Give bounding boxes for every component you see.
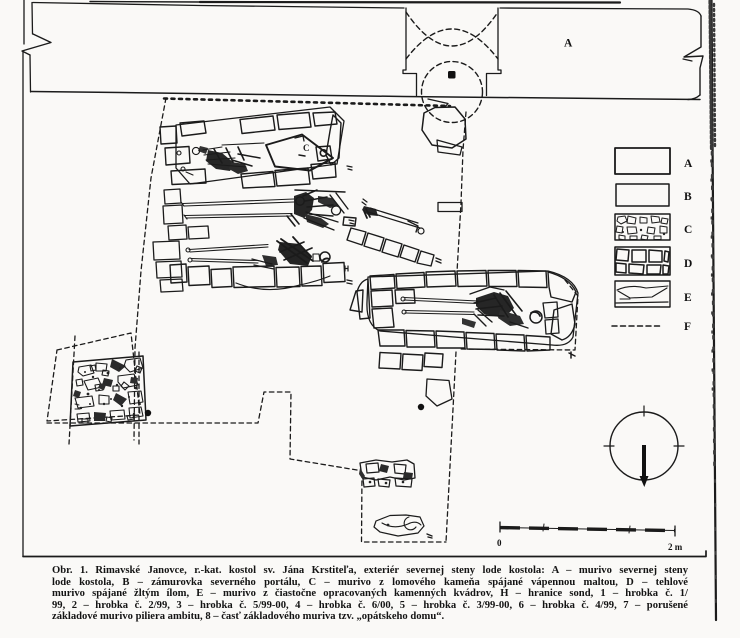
svg-text:C: C: [684, 224, 692, 236]
svg-text:B: B: [684, 191, 692, 203]
svg-text:E: E: [684, 292, 692, 304]
svg-text:F: F: [684, 321, 691, 333]
svg-text:0: 0: [497, 538, 502, 548]
svg-text:D: D: [684, 258, 692, 270]
svg-text:A: A: [564, 38, 573, 50]
svg-text:C: C: [303, 143, 310, 153]
svg-text:A: A: [684, 158, 693, 170]
svg-text:2 m: 2 m: [668, 542, 683, 552]
